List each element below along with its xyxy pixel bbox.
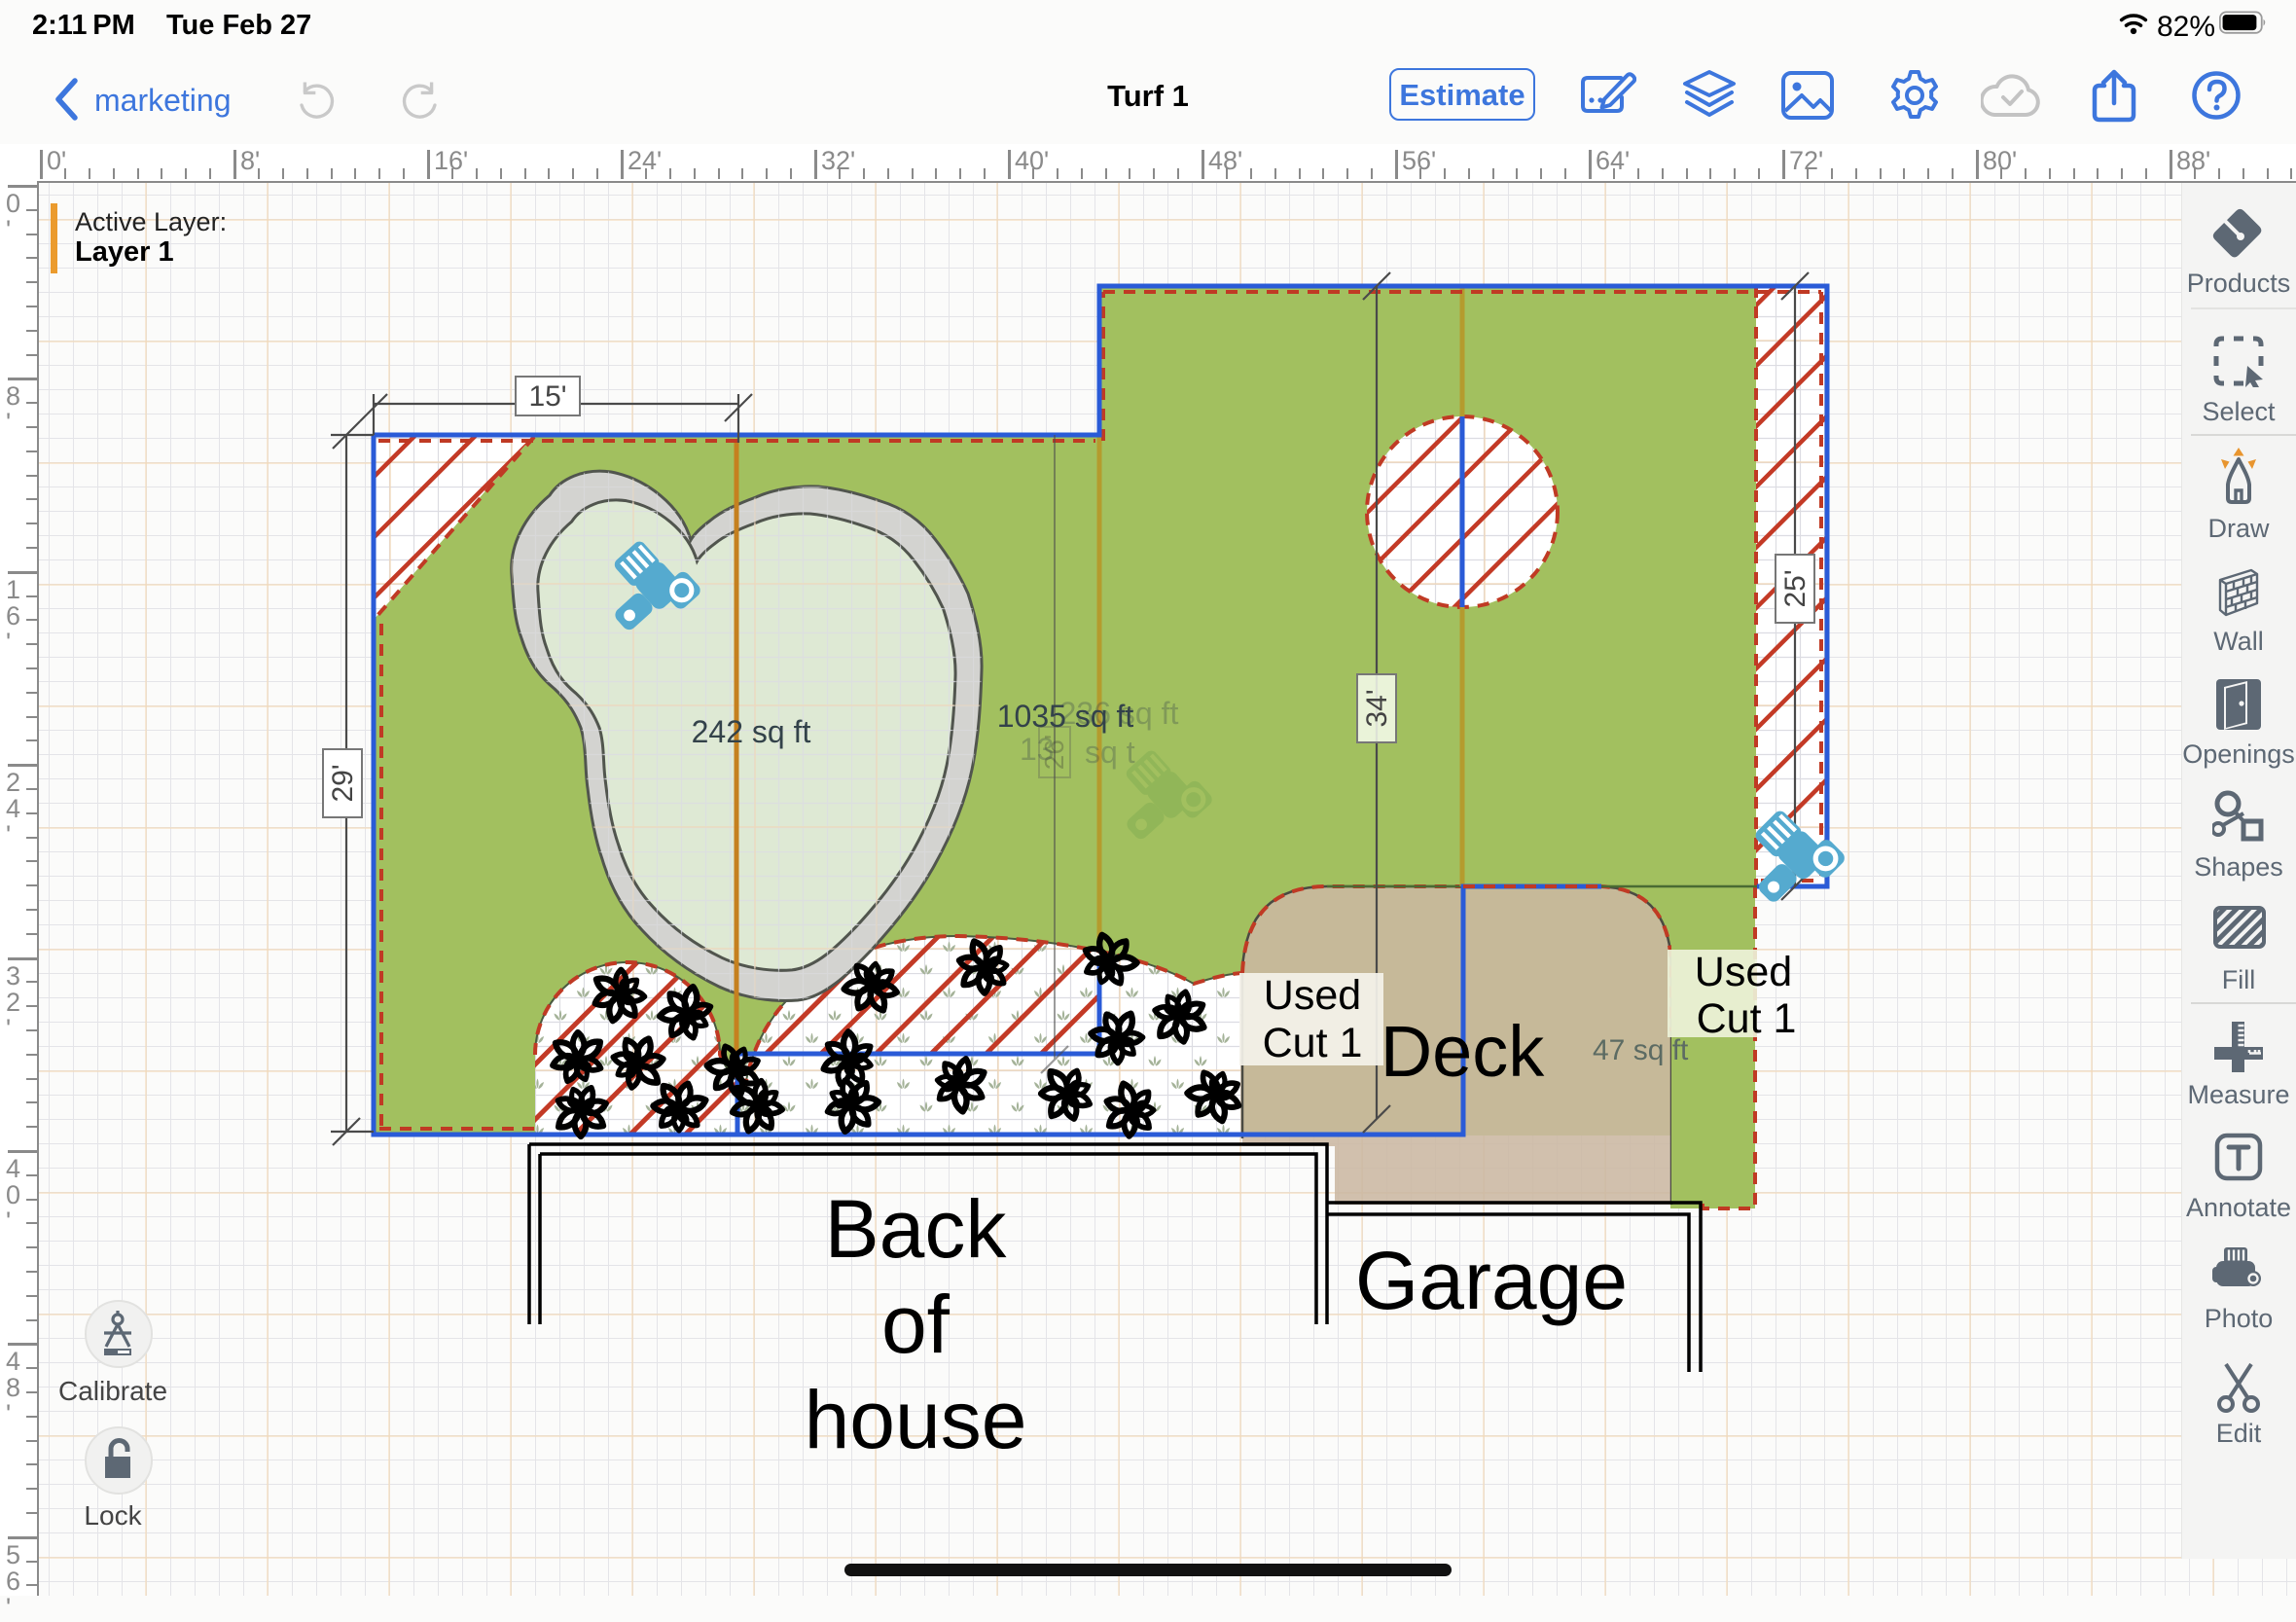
svg-text:47 sq ft: 47 sq ft	[1593, 1034, 1689, 1066]
svg-text:Used: Used	[1695, 949, 1792, 995]
svg-text:sq t: sq t	[1085, 735, 1135, 770]
svg-text:house: house	[805, 1374, 1027, 1465]
svg-text:29': 29'	[327, 764, 359, 802]
svg-text:Used: Used	[1264, 972, 1361, 1019]
svg-text:236 sq ft: 236 sq ft	[1059, 696, 1179, 731]
svg-text:13: 13	[1020, 732, 1055, 767]
svg-text:Cut 1: Cut 1	[1263, 1020, 1363, 1066]
svg-text:Garage: Garage	[1355, 1235, 1628, 1326]
svg-text:34': 34'	[1361, 689, 1393, 727]
svg-text:25': 25'	[1779, 569, 1812, 607]
svg-text:15': 15'	[528, 380, 566, 413]
svg-text:Cut 1: Cut 1	[1697, 995, 1797, 1042]
svg-text:Back: Back	[825, 1183, 1008, 1275]
svg-text:Deck: Deck	[1381, 1011, 1546, 1092]
svg-text:of: of	[881, 1279, 951, 1370]
svg-text:242 sq ft: 242 sq ft	[692, 714, 811, 749]
